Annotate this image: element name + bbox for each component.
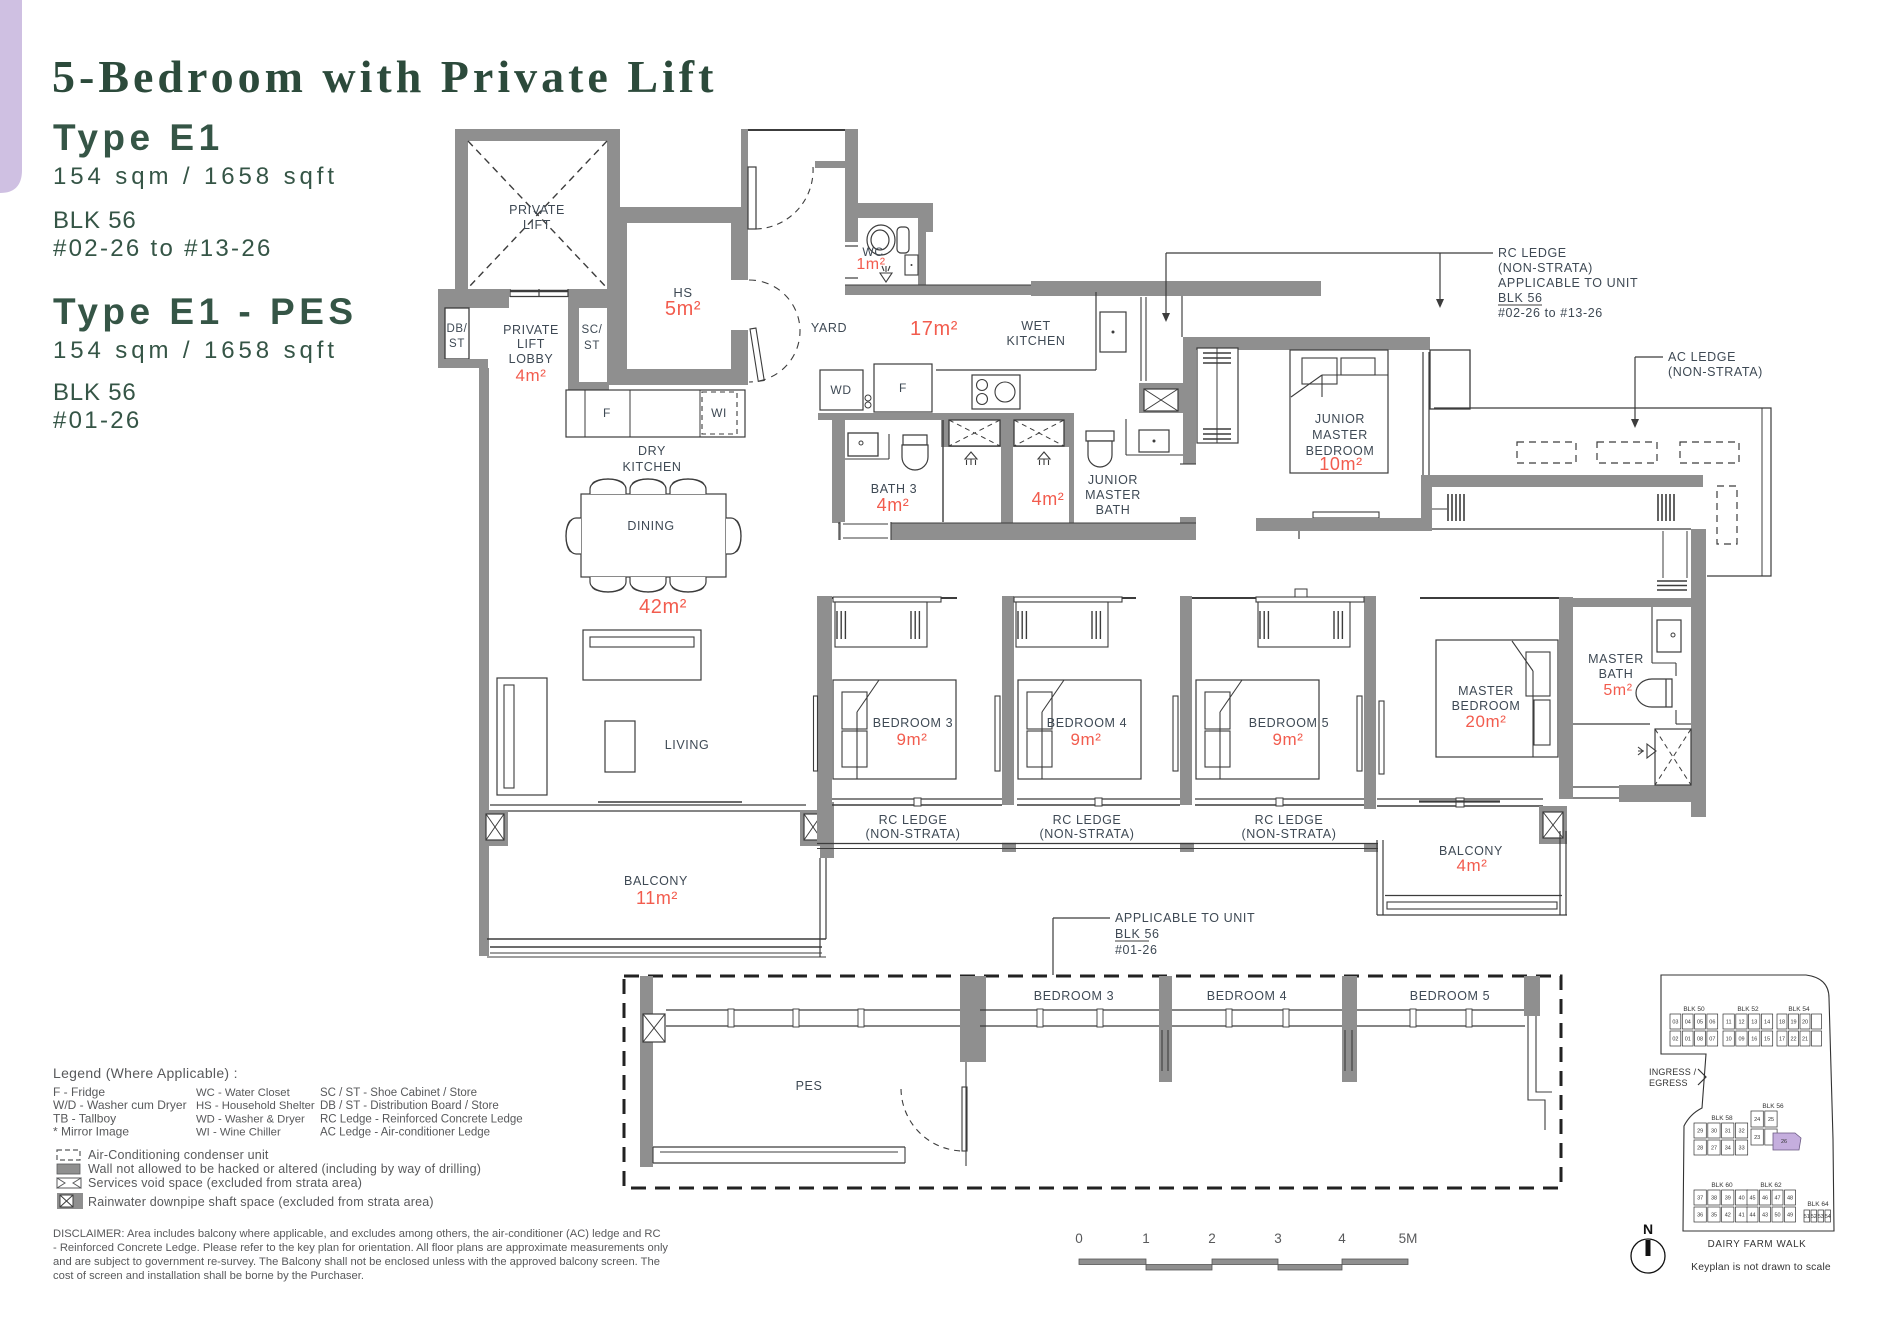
svg-text:47: 47 — [1774, 1196, 1780, 1202]
svg-text:Legend (Where Applicable) :: Legend (Where Applicable) : — [53, 1065, 238, 1081]
svg-text:23: 23 — [1754, 1135, 1760, 1141]
svg-text:3: 3 — [1274, 1231, 1282, 1246]
svg-text:EGRESS: EGRESS — [1649, 1078, 1688, 1088]
svg-text:02: 02 — [1672, 1037, 1678, 1043]
svg-text:19: 19 — [1790, 1020, 1796, 1026]
svg-text:07: 07 — [1709, 1037, 1715, 1043]
svg-text:20m²: 20m² — [1465, 712, 1506, 731]
svg-text:JUNIOR: JUNIOR — [1315, 412, 1365, 426]
svg-text:Rainwater downpipe shaft space: Rainwater downpipe shaft space (excluded… — [88, 1195, 434, 1209]
svg-text:BEDROOM 5: BEDROOM 5 — [1249, 716, 1329, 730]
svg-text:MASTER: MASTER — [1085, 488, 1141, 502]
svg-text:PES: PES — [796, 1079, 823, 1093]
svg-text:MASTER: MASTER — [1312, 428, 1368, 442]
svg-text:17: 17 — [1779, 1037, 1785, 1043]
svg-text:09: 09 — [1738, 1037, 1744, 1043]
svg-text:BEDROOM: BEDROOM — [1452, 699, 1521, 713]
svg-text:38: 38 — [1711, 1196, 1717, 1202]
svg-text:#02-26 to #13-26: #02-26 to #13-26 — [1498, 306, 1603, 320]
svg-text:KITCHEN: KITCHEN — [1006, 334, 1065, 348]
svg-text:DISCLAIMER: Area includes balc: DISCLAIMER: Area includes balcony where … — [53, 1228, 661, 1240]
svg-text:BLK 56: BLK 56 — [1762, 1103, 1784, 1110]
svg-text:06: 06 — [1709, 1020, 1715, 1026]
svg-text:LOBBY: LOBBY — [509, 352, 554, 366]
svg-text:Services void space (excluded: Services void space (excluded from strat… — [88, 1176, 362, 1190]
svg-text:03: 03 — [1672, 1020, 1678, 1026]
svg-text:54: 54 — [1825, 1214, 1831, 1220]
svg-text:11m²: 11m² — [636, 888, 678, 908]
svg-text:35: 35 — [1711, 1213, 1717, 1219]
svg-text:5M: 5M — [1399, 1231, 1418, 1246]
svg-text:KITCHEN: KITCHEN — [622, 460, 681, 474]
svg-text:BATH: BATH — [1599, 667, 1634, 681]
svg-text:15: 15 — [1764, 1037, 1770, 1043]
svg-text:HS - Household Shelter: HS - Household Shelter — [196, 1100, 315, 1112]
svg-text:APPLICABLE TO UNIT: APPLICABLE TO UNIT — [1115, 911, 1255, 925]
svg-text:BLK 56: BLK 56 — [53, 207, 137, 234]
svg-text:46: 46 — [1762, 1196, 1768, 1202]
svg-text:LIFT: LIFT — [523, 218, 551, 232]
svg-text:31: 31 — [1725, 1129, 1731, 1135]
svg-text:52: 52 — [1811, 1214, 1817, 1220]
svg-text:#01-26: #01-26 — [53, 407, 142, 434]
svg-text:Type E1 - PES: Type E1 - PES — [53, 291, 358, 332]
svg-text:YARD: YARD — [811, 321, 847, 335]
svg-text:RC LEDGE: RC LEDGE — [1053, 813, 1122, 827]
svg-text:20: 20 — [1802, 1020, 1808, 1026]
svg-text:JUNIOR: JUNIOR — [1088, 473, 1138, 487]
svg-text:42: 42 — [1725, 1213, 1731, 1219]
svg-text:12: 12 — [1738, 1020, 1744, 1026]
svg-text:BLK 56: BLK 56 — [1498, 291, 1543, 305]
svg-text:LIVING: LIVING — [665, 738, 710, 752]
svg-text:BEDROOM 4: BEDROOM 4 — [1047, 716, 1127, 730]
svg-text:22: 22 — [1790, 1037, 1796, 1043]
svg-text:RC LEDGE: RC LEDGE — [1498, 246, 1567, 260]
svg-text:32: 32 — [1739, 1129, 1745, 1135]
svg-text:9m²: 9m² — [1070, 730, 1101, 749]
svg-text:49: 49 — [1787, 1213, 1793, 1219]
svg-text:BLK 50: BLK 50 — [1683, 1006, 1705, 1013]
svg-text:1m²: 1m² — [856, 256, 885, 273]
svg-text:51: 51 — [1804, 1214, 1810, 1220]
svg-text:41: 41 — [1739, 1213, 1745, 1219]
svg-text:DRY: DRY — [638, 444, 666, 458]
svg-text:36: 36 — [1697, 1213, 1703, 1219]
svg-text:BALCONY: BALCONY — [624, 874, 688, 888]
svg-text:Type E1: Type E1 — [53, 117, 224, 158]
svg-text:11: 11 — [1726, 1020, 1732, 1026]
svg-text:25: 25 — [1768, 1117, 1774, 1123]
svg-text:2: 2 — [1208, 1231, 1216, 1246]
svg-text:1: 1 — [1142, 1231, 1150, 1246]
svg-text:MASTER: MASTER — [1588, 652, 1644, 666]
svg-text:48: 48 — [1787, 1196, 1793, 1202]
svg-text:WI - Wine Chiller: WI - Wine Chiller — [196, 1127, 281, 1139]
svg-text:50: 50 — [1774, 1213, 1780, 1219]
svg-text:BLK 64: BLK 64 — [1807, 1201, 1829, 1208]
svg-text:BEDROOM 5: BEDROOM 5 — [1410, 989, 1490, 1003]
svg-text:W/D - Washer cum Dryer: W/D - Washer cum Dryer — [53, 1098, 187, 1112]
svg-text:53: 53 — [1818, 1214, 1824, 1220]
svg-text:N: N — [1643, 1221, 1653, 1237]
svg-text:MASTER: MASTER — [1458, 684, 1514, 698]
svg-text:08: 08 — [1697, 1037, 1703, 1043]
svg-text:and are subject to government: and are subject to government re-survey.… — [53, 1256, 660, 1268]
svg-text:AC Ledge - Air-conditioner Led: AC Ledge - Air-conditioner Ledge — [320, 1127, 490, 1139]
svg-text:BEDROOM 3: BEDROOM 3 — [1034, 989, 1114, 1003]
svg-text:01: 01 — [1685, 1037, 1691, 1043]
svg-text:BATH 3: BATH 3 — [871, 482, 917, 496]
svg-text:BATH: BATH — [1096, 503, 1131, 517]
svg-text:DB / ST - Distribution Board /: DB / ST - Distribution Board / Store — [320, 1100, 499, 1112]
svg-text:4m²: 4m² — [1456, 856, 1487, 875]
svg-text:(NON-STRATA): (NON-STRATA) — [1242, 827, 1337, 841]
svg-text:44: 44 — [1749, 1213, 1755, 1219]
svg-text:AC LEDGE: AC LEDGE — [1668, 350, 1736, 364]
svg-text:BLK 56: BLK 56 — [53, 379, 137, 406]
svg-text:21: 21 — [1802, 1037, 1808, 1043]
svg-text:cost of screen and installatio: cost of screen and installation shall be… — [53, 1270, 364, 1282]
svg-text:14: 14 — [1764, 1020, 1770, 1026]
svg-text:30: 30 — [1711, 1129, 1717, 1135]
svg-text:04: 04 — [1685, 1020, 1691, 1026]
svg-text:WD: WD — [830, 383, 851, 397]
svg-text:APPLICABLE TO UNIT: APPLICABLE TO UNIT — [1498, 276, 1638, 290]
svg-text:45: 45 — [1749, 1196, 1755, 1202]
svg-text:RC LEDGE: RC LEDGE — [879, 813, 948, 827]
svg-text:ST: ST — [584, 340, 600, 352]
svg-text:4: 4 — [1338, 1231, 1346, 1246]
svg-text:(NON-STRATA): (NON-STRATA) — [866, 827, 961, 841]
svg-text:4m²: 4m² — [877, 495, 910, 515]
svg-text:05: 05 — [1697, 1020, 1703, 1026]
svg-text:9m²: 9m² — [896, 730, 927, 749]
svg-text:#01-26: #01-26 — [1115, 943, 1158, 957]
svg-text:Keyplan is not drawn to scale: Keyplan is not drawn to scale — [1691, 1262, 1831, 1273]
svg-text:Air-Conditioning condenser uni: Air-Conditioning condenser unit — [88, 1148, 269, 1162]
svg-text:DB/: DB/ — [447, 323, 468, 335]
svg-text:16: 16 — [1751, 1037, 1757, 1043]
svg-text:154 sqm / 1658 sqft: 154 sqm / 1658 sqft — [53, 337, 338, 364]
svg-text:BLK 52: BLK 52 — [1737, 1006, 1759, 1013]
svg-text:(NON-STRATA): (NON-STRATA) — [1668, 365, 1763, 379]
svg-text:BLK 56: BLK 56 — [1115, 927, 1160, 941]
svg-text:RC Ledge - Reinforced Concrete: RC Ledge - Reinforced Concrete Ledge — [320, 1113, 523, 1125]
svg-text:WD - Washer & Dryer: WD - Washer & Dryer — [196, 1113, 305, 1125]
svg-text:- Reinforced Concrete Ledge. P: - Reinforced Concrete Ledge. Please refe… — [53, 1242, 668, 1254]
svg-text:DINING: DINING — [627, 519, 674, 533]
svg-text:WET: WET — [1021, 319, 1051, 333]
svg-text:17m²: 17m² — [910, 318, 958, 340]
svg-text:26: 26 — [1781, 1139, 1787, 1145]
svg-text:43: 43 — [1762, 1213, 1768, 1219]
svg-text:SC/: SC/ — [582, 324, 603, 336]
svg-text:18: 18 — [1779, 1020, 1785, 1026]
svg-text:TB - Tallboy: TB - Tallboy — [53, 1111, 116, 1125]
svg-text:40: 40 — [1739, 1196, 1745, 1202]
svg-text:BLK 58: BLK 58 — [1711, 1115, 1733, 1122]
svg-text:154 sqm / 1658 sqft: 154 sqm / 1658 sqft — [53, 163, 338, 190]
svg-text:PRIVATE: PRIVATE — [503, 323, 559, 337]
svg-text:* Mirror Image: * Mirror Image — [53, 1125, 129, 1139]
svg-text:28: 28 — [1697, 1146, 1703, 1152]
svg-text:F: F — [899, 381, 907, 395]
svg-text:10m²: 10m² — [1319, 454, 1362, 474]
svg-text:F - Fridge: F - Fridge — [53, 1085, 105, 1099]
svg-text:SC / ST - Shoe Cabinet / Store: SC / ST - Shoe Cabinet / Store — [320, 1087, 477, 1099]
svg-text:5-Bedroom with Private Lift: 5-Bedroom with Private Lift — [52, 51, 717, 102]
svg-text:13: 13 — [1751, 1020, 1757, 1026]
svg-text:LIFT: LIFT — [517, 337, 545, 351]
svg-text:DAIRY FARM WALK: DAIRY FARM WALK — [1708, 1239, 1807, 1250]
svg-text:(NON-STRATA): (NON-STRATA) — [1040, 827, 1135, 841]
svg-text:4m²: 4m² — [515, 366, 546, 385]
svg-text:24: 24 — [1754, 1117, 1760, 1123]
svg-text:BEDROOM 4: BEDROOM 4 — [1207, 989, 1287, 1003]
svg-text:33: 33 — [1739, 1146, 1745, 1152]
svg-text:10: 10 — [1726, 1037, 1732, 1043]
svg-text:PRIVATE: PRIVATE — [509, 203, 565, 217]
svg-text:29: 29 — [1697, 1129, 1703, 1135]
svg-text:(NON-STRATA): (NON-STRATA) — [1498, 261, 1593, 275]
svg-text:27: 27 — [1711, 1146, 1717, 1152]
svg-text:34: 34 — [1725, 1146, 1731, 1152]
svg-text:WC - Water Closet: WC - Water Closet — [196, 1087, 291, 1099]
svg-text:5m²: 5m² — [1603, 682, 1632, 699]
svg-text:ST: ST — [449, 338, 465, 350]
svg-text:INGRESS /: INGRESS / — [1649, 1067, 1697, 1077]
svg-text:9m²: 9m² — [1272, 730, 1303, 749]
svg-text:Wall not allowed to be hacked: Wall not allowed to be hacked or altered… — [88, 1162, 481, 1176]
svg-text:BLK 60: BLK 60 — [1711, 1182, 1733, 1189]
svg-text:BLK 54: BLK 54 — [1788, 1006, 1810, 1013]
svg-text:4m²: 4m² — [1032, 489, 1065, 509]
svg-text:F: F — [603, 406, 611, 420]
svg-text:BLK 62: BLK 62 — [1760, 1182, 1782, 1189]
svg-text:39: 39 — [1725, 1196, 1731, 1202]
svg-text:BEDROOM 3: BEDROOM 3 — [873, 716, 953, 730]
svg-text:WI: WI — [711, 406, 727, 420]
svg-text:5m²: 5m² — [665, 298, 701, 320]
svg-text:37: 37 — [1697, 1196, 1703, 1202]
svg-text:RC LEDGE: RC LEDGE — [1255, 813, 1324, 827]
svg-text:42m²: 42m² — [639, 596, 687, 618]
svg-text:0: 0 — [1075, 1231, 1083, 1246]
svg-text:#02-26 to #13-26: #02-26 to #13-26 — [53, 235, 273, 262]
